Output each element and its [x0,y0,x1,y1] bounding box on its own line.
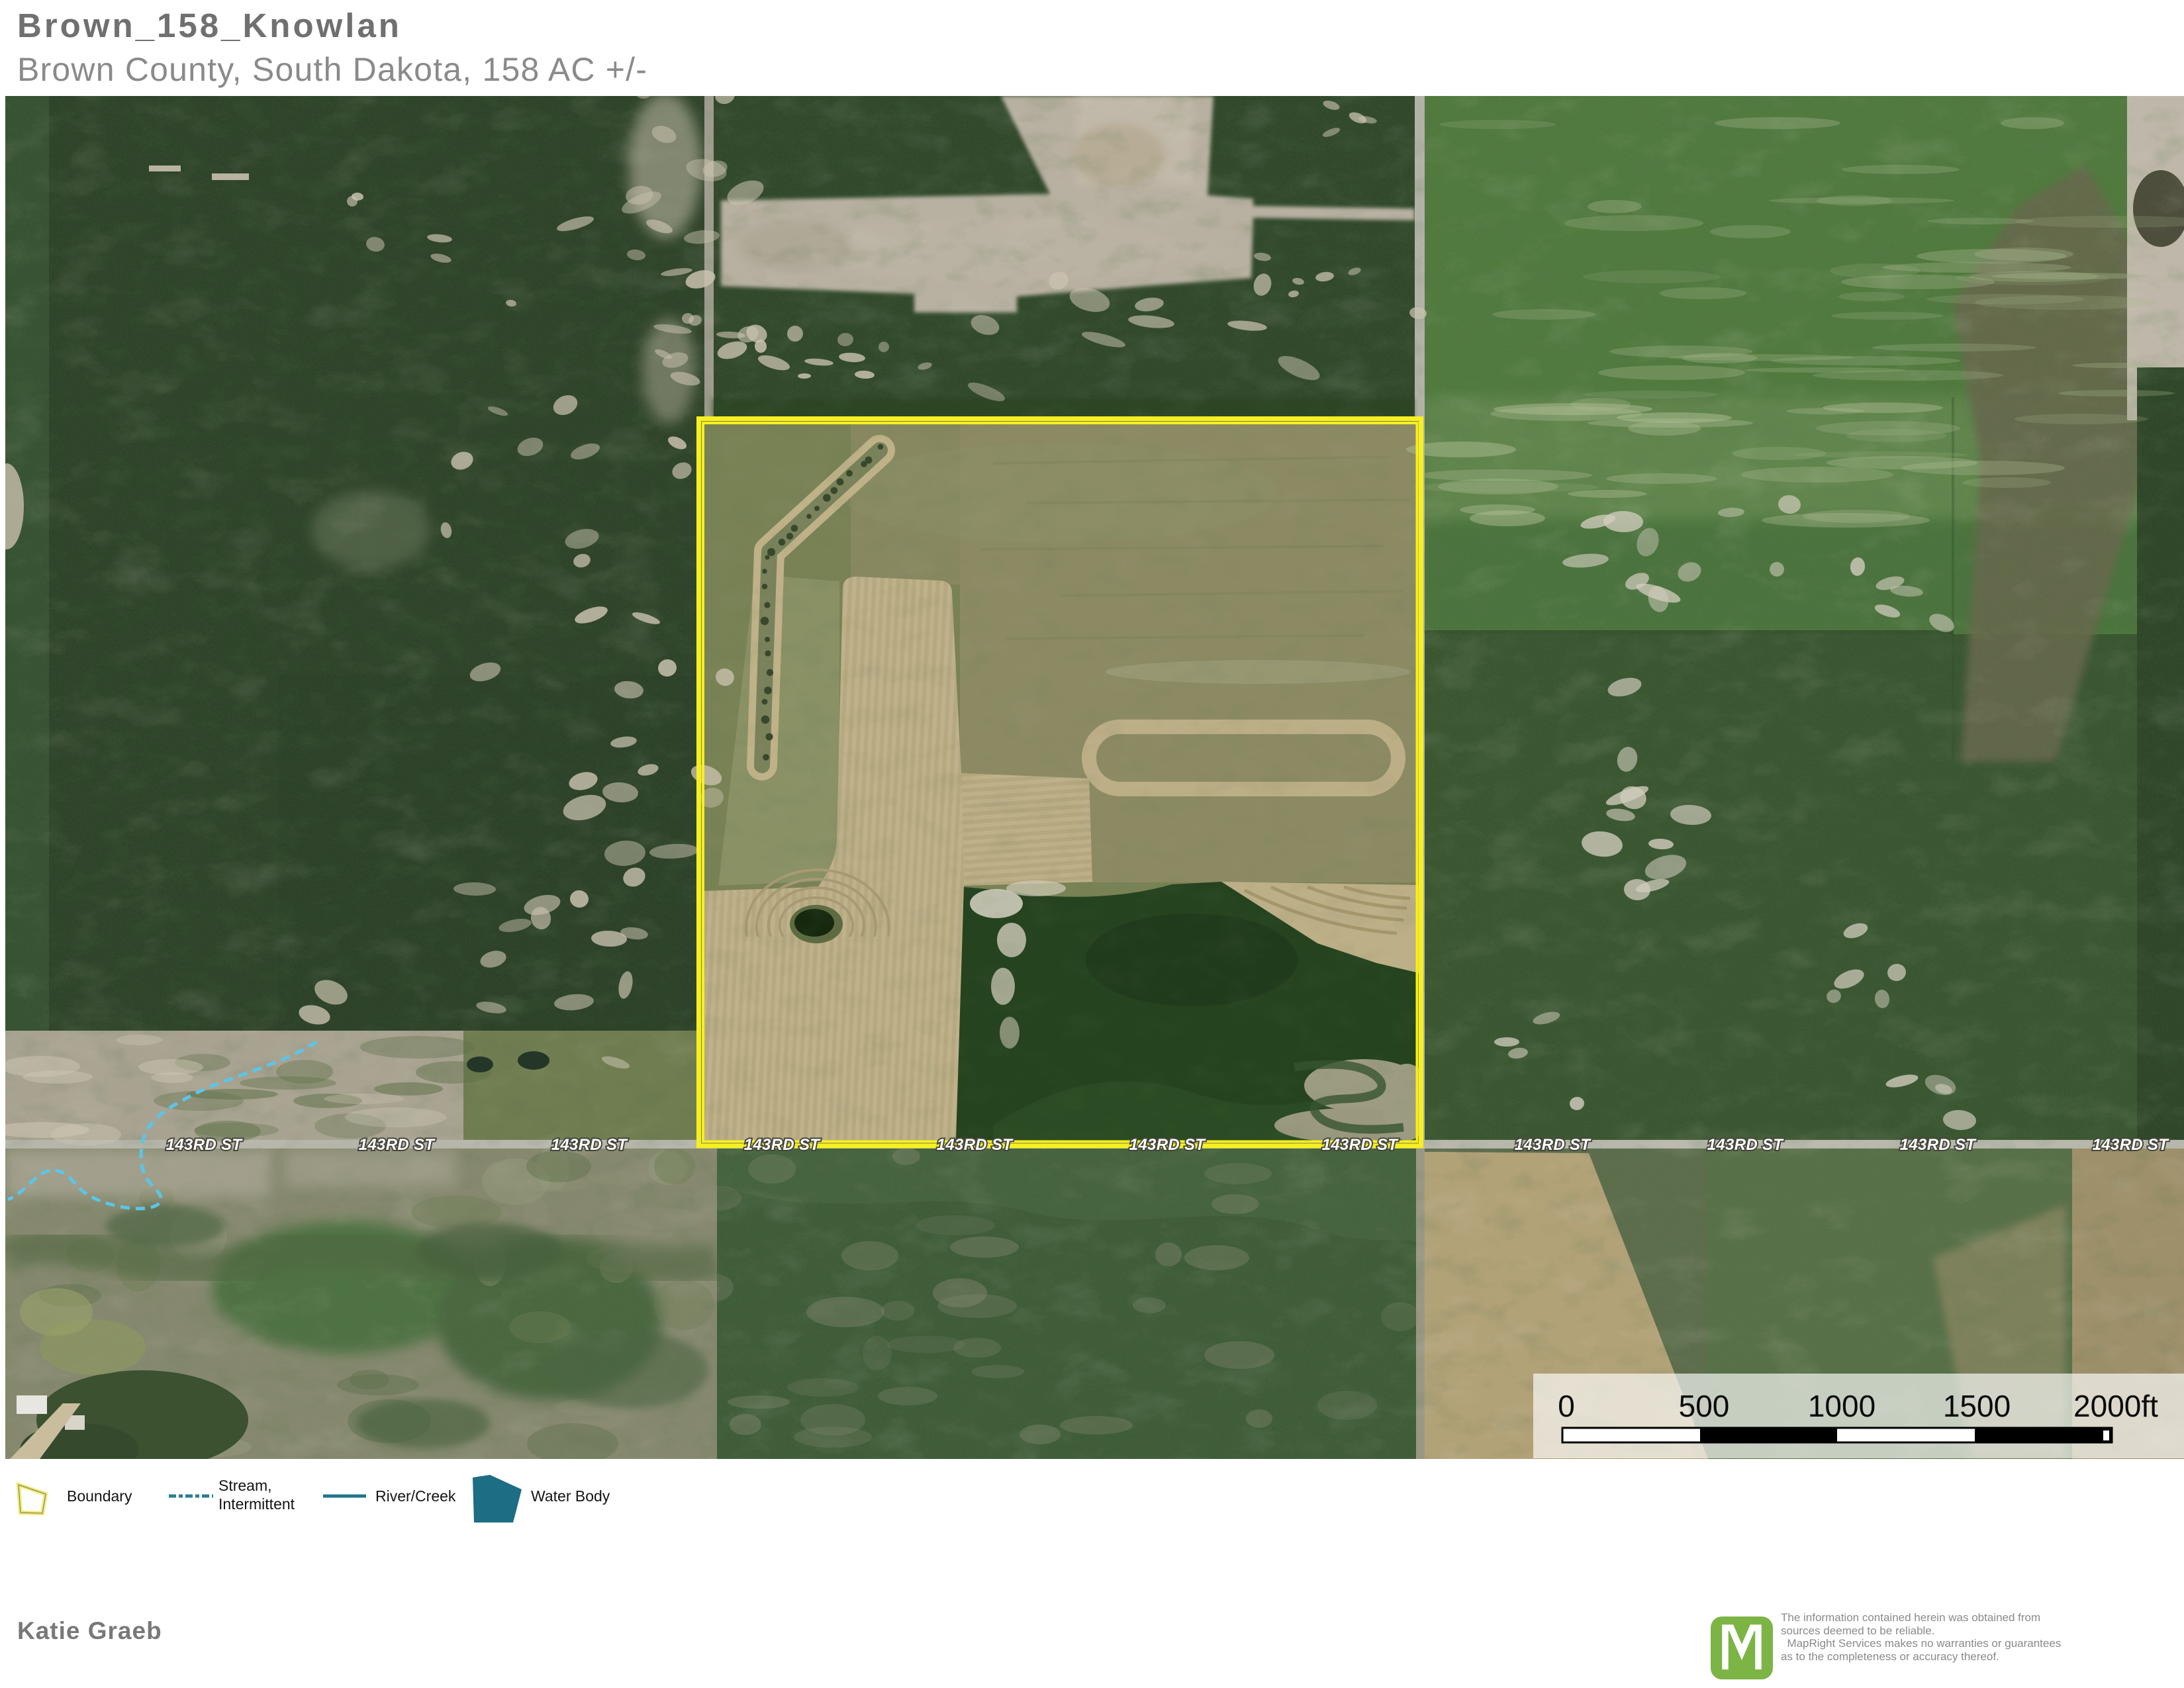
svg-text:143RD ST: 143RD ST [1707,1136,1784,1154]
svg-text:2000ft: 2000ft [2073,1389,2158,1423]
svg-text:500: 500 [1679,1389,1730,1423]
svg-text:Boundary: Boundary [67,1487,132,1505]
svg-text:143RD ST: 143RD ST [2093,1136,2169,1154]
svg-text:Water Body: Water Body [531,1487,610,1505]
svg-text:1000: 1000 [1808,1389,1875,1423]
svg-text:1500: 1500 [1943,1389,2011,1423]
svg-text:143RD ST: 143RD ST [744,1136,821,1154]
svg-text:143RD ST: 143RD ST [166,1136,243,1154]
svg-text:143RD ST: 143RD ST [1515,1136,1591,1154]
svg-text:143RD ST: 143RD ST [359,1136,436,1154]
svg-text:River/Creek: River/Creek [375,1487,456,1505]
svg-text:0: 0 [1558,1389,1575,1423]
svg-text:143RD ST: 143RD ST [1322,1136,1399,1154]
svg-text:143RD ST: 143RD ST [937,1136,1014,1154]
svg-text:143RD ST: 143RD ST [1900,1136,1977,1154]
svg-text:Intermittent: Intermittent [218,1495,295,1513]
svg-text:143RD ST: 143RD ST [551,1136,628,1154]
svg-text:Stream,: Stream, [218,1477,272,1494]
svg-text:143RD ST: 143RD ST [1129,1136,1206,1154]
